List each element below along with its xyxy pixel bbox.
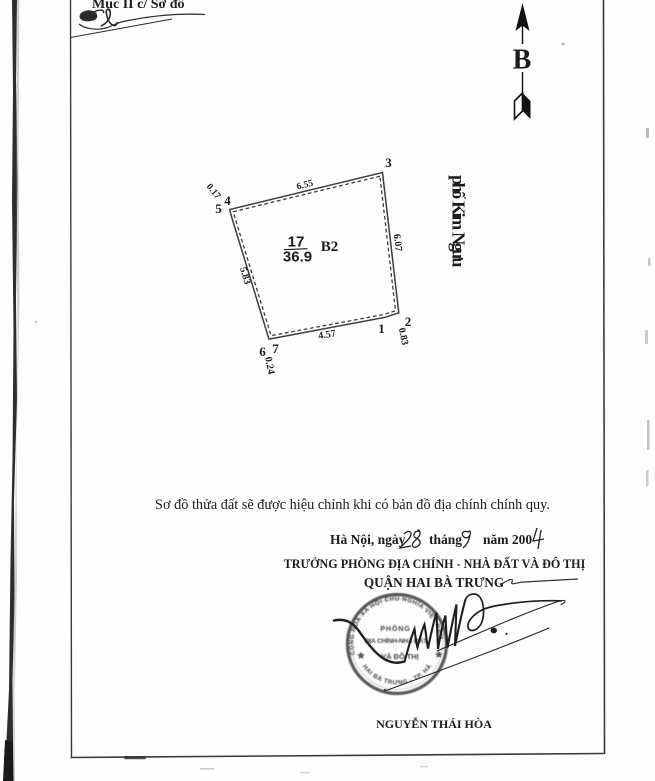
svg-text:5: 5 [215, 201, 222, 216]
svg-text:tháng: tháng [429, 532, 462, 547]
svg-text:5.83: 5.83 [237, 266, 253, 286]
svg-text:B: B [513, 45, 532, 76]
svg-text:7: 7 [272, 341, 279, 356]
svg-text:Sơ đồ thửa đất sẽ được hiệu ch: Sơ đồ thửa đất sẽ được hiệu chỉnh khi có… [155, 497, 550, 513]
svg-text:4: 4 [224, 193, 231, 208]
svg-text:năm 200: năm 200 [483, 532, 532, 547]
svg-text:PHÒNG: PHÒNG [380, 624, 410, 633]
svg-text:Hà Nội, ngày: Hà Nội, ngày [330, 532, 406, 547]
svg-text:0.17: 0.17 [204, 182, 223, 201]
svg-text:QUẬN HAI BÀ TRƯNG: QUẬN HAI BÀ TRƯNG [364, 575, 504, 590]
svg-text:TRƯỞNG PHÒNG ĐỊA CHÍNH - NHÀ Đ: TRƯỞNG PHÒNG ĐỊA CHÍNH - NHÀ ĐẤT VÀ ĐÔ T… [284, 556, 586, 571]
svg-text:36.9: 36.9 [283, 249, 312, 266]
svg-text:0.24: 0.24 [262, 356, 276, 375]
svg-text:B2: B2 [321, 239, 339, 255]
svg-text:4.57: 4.57 [317, 328, 336, 342]
svg-text:NGUYỄN THÁI HÒA: NGUYỄN THÁI HÒA [376, 716, 492, 731]
svg-text:6.07: 6.07 [391, 233, 404, 252]
svg-text:3: 3 [385, 155, 392, 170]
svg-text:0.83: 0.83 [396, 327, 410, 346]
svg-text:1: 1 [378, 321, 385, 336]
svg-text:phố Kim Ngưu: phố Kim Ngưu [449, 175, 469, 267]
